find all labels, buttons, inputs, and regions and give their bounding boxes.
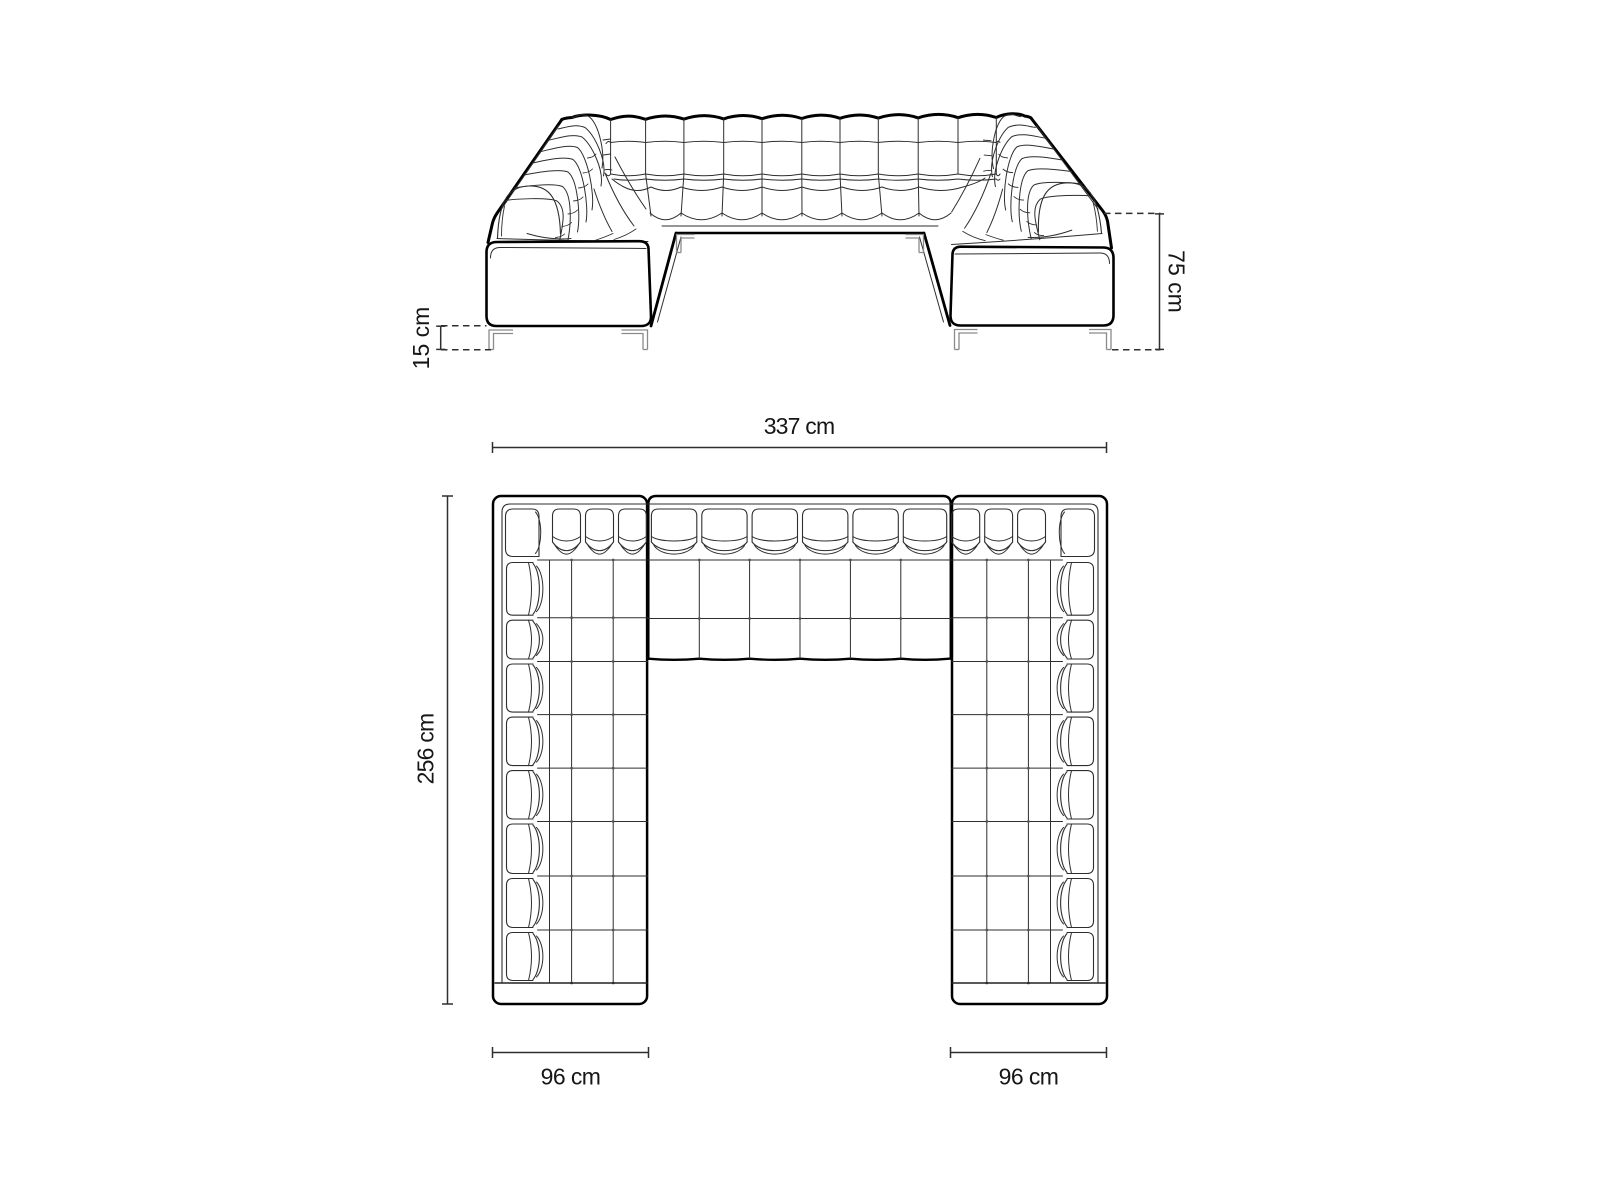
svg-text:337 cm: 337 cm bbox=[764, 413, 835, 439]
svg-text:96 cm: 96 cm bbox=[541, 1064, 601, 1090]
svg-text:15 cm: 15 cm bbox=[408, 307, 434, 370]
svg-text:96 cm: 96 cm bbox=[999, 1064, 1059, 1090]
svg-text:75 cm: 75 cm bbox=[1164, 250, 1190, 313]
svg-text:256 cm: 256 cm bbox=[413, 714, 439, 785]
